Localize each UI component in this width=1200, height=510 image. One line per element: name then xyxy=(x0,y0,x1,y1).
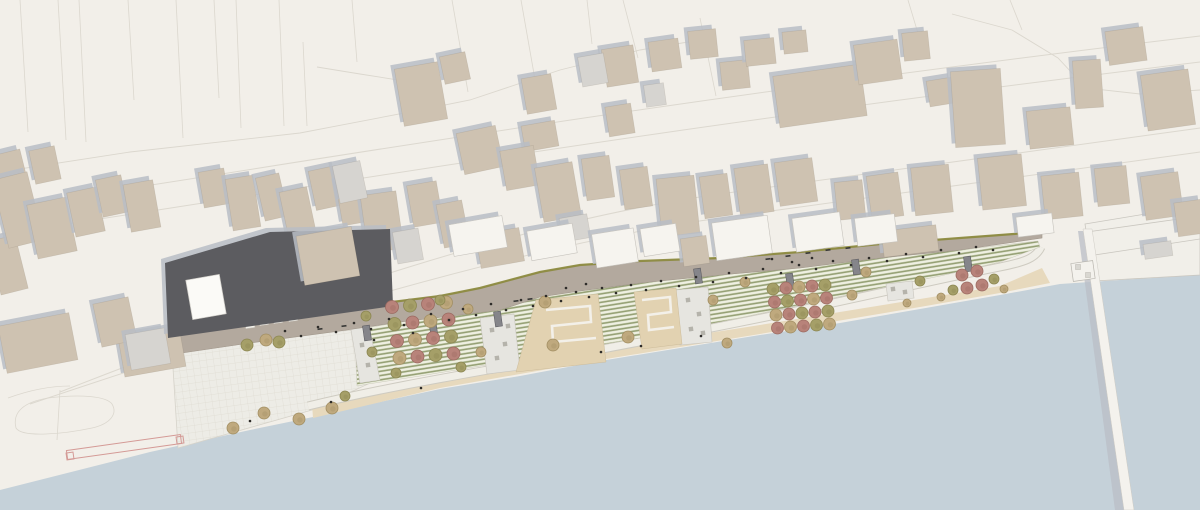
person-dot xyxy=(695,276,698,279)
person-dot xyxy=(588,296,591,299)
person-dot xyxy=(520,299,523,302)
person-dot xyxy=(815,268,818,271)
person-dot xyxy=(745,277,748,280)
person-dot xyxy=(791,261,794,264)
person-dot xyxy=(412,332,415,335)
pier-platform xyxy=(1071,261,1095,282)
person-dot xyxy=(922,256,925,259)
person-dot xyxy=(600,351,603,354)
person-dot xyxy=(462,308,465,311)
person-dot xyxy=(560,300,563,303)
person-dot xyxy=(728,272,731,275)
plan-viewport xyxy=(0,0,1200,510)
person-dot xyxy=(975,246,978,249)
person-dot xyxy=(403,324,406,327)
person-dot xyxy=(615,292,618,295)
stair-terrace xyxy=(886,281,914,301)
person-dot xyxy=(940,249,943,252)
person-dot xyxy=(992,249,995,252)
person-dot xyxy=(335,331,338,334)
person-dot xyxy=(585,283,588,286)
person-dot xyxy=(373,339,376,342)
courtyard xyxy=(186,274,226,319)
person-dot xyxy=(565,287,568,290)
person-dot xyxy=(532,305,535,308)
person-dot xyxy=(850,264,853,267)
person-dot xyxy=(811,257,814,260)
person-dot xyxy=(475,314,478,317)
person-dot xyxy=(249,420,252,423)
person-dot xyxy=(601,287,604,290)
person-dot xyxy=(762,268,765,271)
person-dot xyxy=(284,330,287,333)
site-plan-svg xyxy=(0,0,1200,510)
person-dot xyxy=(353,322,356,325)
person-dot xyxy=(490,303,493,306)
person-dot xyxy=(545,295,548,298)
person-dot xyxy=(660,280,663,283)
person-dot xyxy=(832,260,835,263)
person-dot xyxy=(771,258,774,261)
person-dot xyxy=(700,335,703,338)
person-dot xyxy=(575,291,578,294)
person-dot xyxy=(958,252,961,255)
person-dot xyxy=(886,260,889,263)
person-dot xyxy=(798,264,801,267)
person-dot xyxy=(645,289,648,292)
person-dot xyxy=(370,328,373,331)
person-dot xyxy=(317,326,320,329)
person-dot xyxy=(630,284,633,287)
person-dot xyxy=(330,401,333,404)
person-dot xyxy=(905,253,908,256)
person-dot xyxy=(448,319,451,322)
person-dot xyxy=(868,257,871,260)
person-dot xyxy=(712,281,715,284)
person-dot xyxy=(505,309,508,312)
person-dot xyxy=(420,387,423,390)
person-dot xyxy=(640,345,643,348)
person-dot xyxy=(430,313,433,316)
person-dot xyxy=(678,285,681,288)
person-dot xyxy=(388,318,391,321)
person-dot xyxy=(300,335,303,338)
person-dot xyxy=(780,272,783,275)
